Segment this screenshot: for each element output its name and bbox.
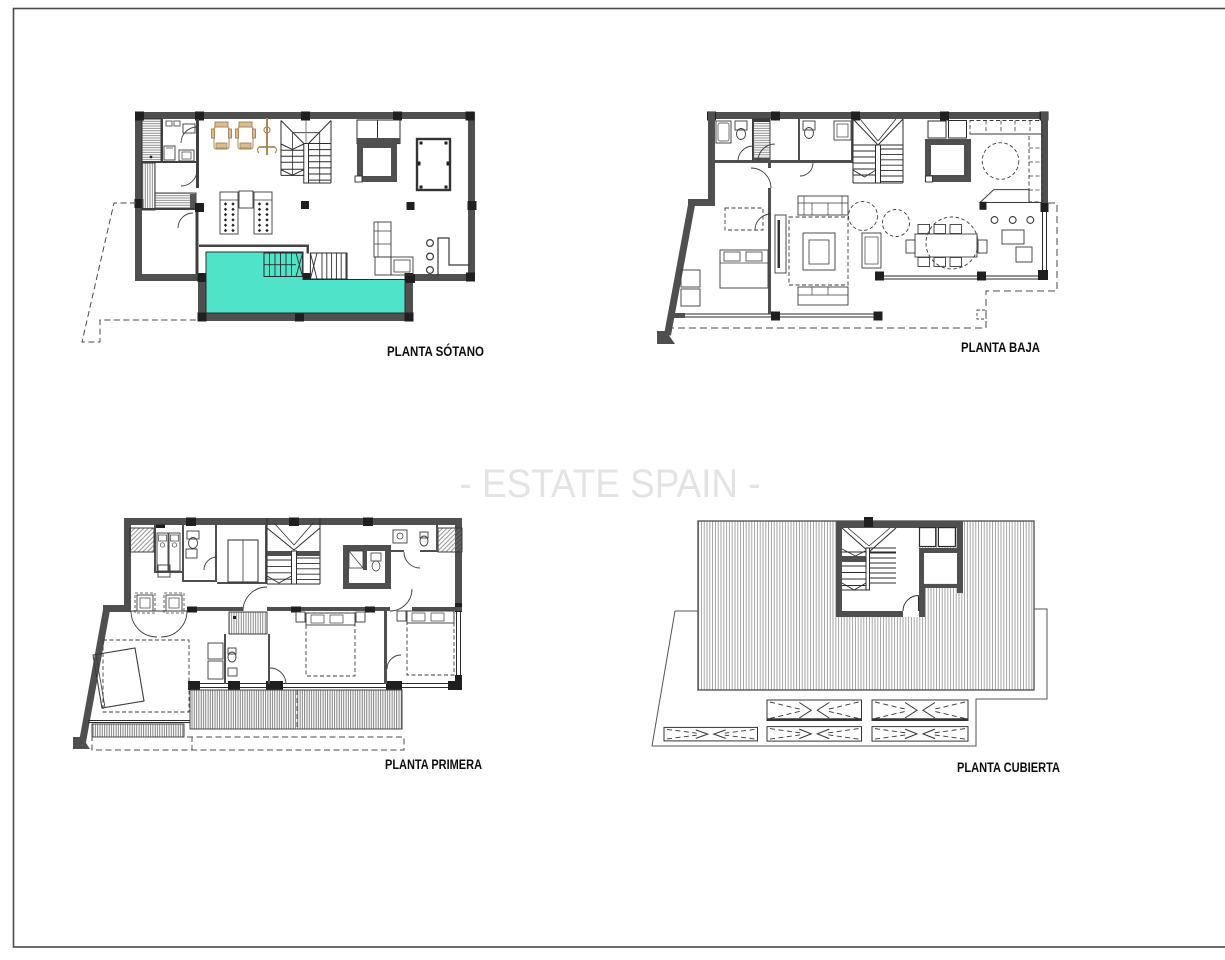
svg-text:PLANTA SÓTANO: PLANTA SÓTANO xyxy=(387,344,484,359)
svg-text:PLANTA CUBIERTA: PLANTA CUBIERTA xyxy=(957,760,1060,775)
svg-text:PLANTA BAJA: PLANTA BAJA xyxy=(961,340,1040,355)
svg-text:- ESTATE SPAIN -: - ESTATE SPAIN - xyxy=(460,462,761,506)
svg-text:PLANTA PRIMERA: PLANTA PRIMERA xyxy=(385,757,482,772)
